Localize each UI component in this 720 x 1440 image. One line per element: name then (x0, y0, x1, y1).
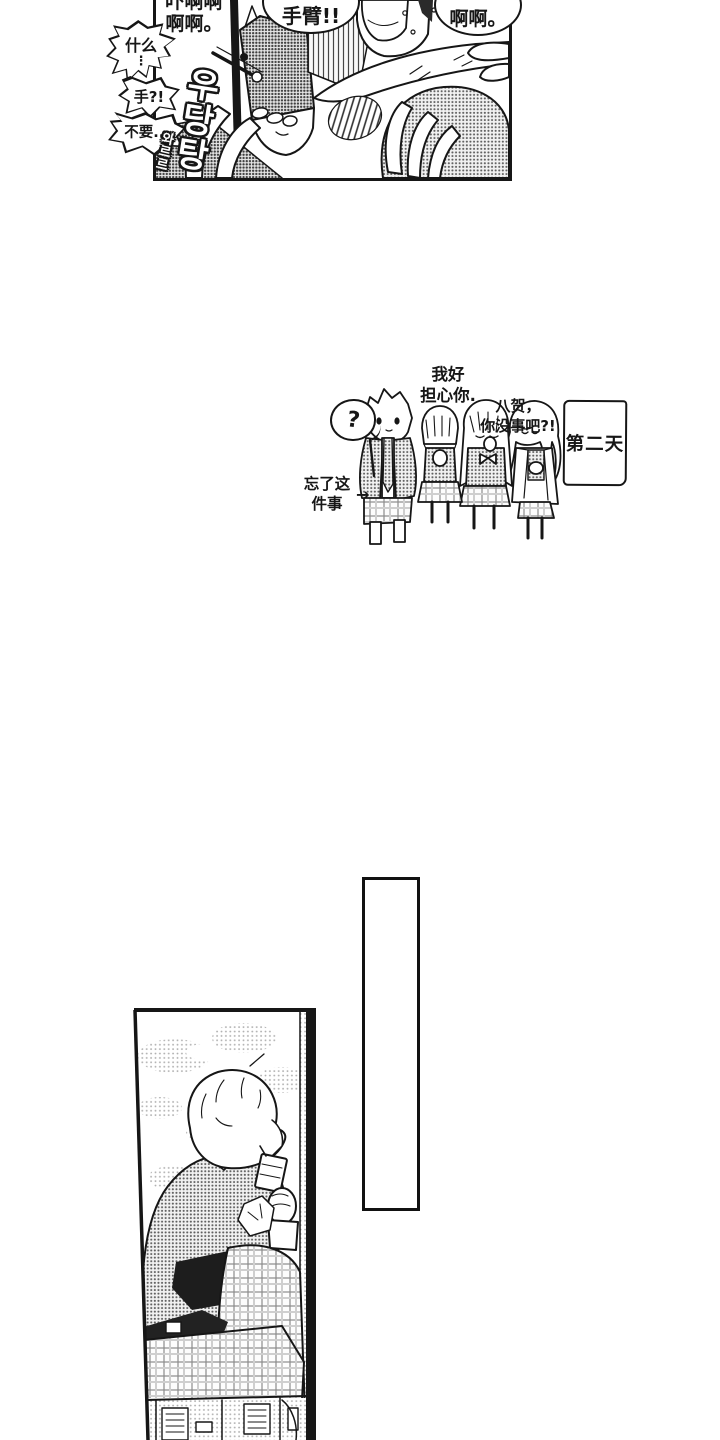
scream-left-line1: 吓啊啊 (156, 0, 232, 13)
what-line2: ⋮ (135, 55, 148, 69)
manga-page: 吓啊啊 啊啊。 手臂!! 啊啊。 什么 ⋮ 手?! 不要... 우당탕 와르르 (0, 0, 720, 1440)
scream-left-line2: 啊啊。 (156, 13, 232, 35)
day-caption-box: 第二天 (563, 400, 628, 486)
name-call-line2: 你没事吧?! (470, 417, 566, 437)
forgot-line2: 件事 (296, 494, 358, 514)
name-call-text: 八贺， 你没事吧?! (470, 397, 566, 436)
name-call-line1: 八贺， (470, 397, 566, 417)
forgot-line1: 忘了这 (296, 474, 358, 494)
scream-right-text: 啊啊。 (436, 4, 520, 31)
question-mark-text: ? (345, 407, 361, 434)
speech-bubble-scream-right: 啊啊。 (434, 0, 522, 36)
day-label: 第二天 (566, 430, 625, 456)
speech-bubble-arm: 手臂!! (262, 0, 360, 34)
hand-text: 手?! (134, 90, 165, 106)
arm-shout-text: 手臂!! (264, 0, 358, 29)
forgot-caption: 忘了这 件事 (296, 474, 358, 514)
speech-bubble-scream-left: 吓啊啊 啊啊。 (156, 0, 232, 36)
empty-narration-box (362, 877, 420, 1211)
worry-line1: 我好 (408, 365, 488, 386)
what-line1: 什么 (125, 38, 157, 55)
question-bubble: ? (330, 399, 376, 441)
caption-arrow: → (356, 486, 369, 505)
bottom-manga-panel (132, 1008, 316, 1440)
bottom-panel-art (132, 1008, 316, 1440)
